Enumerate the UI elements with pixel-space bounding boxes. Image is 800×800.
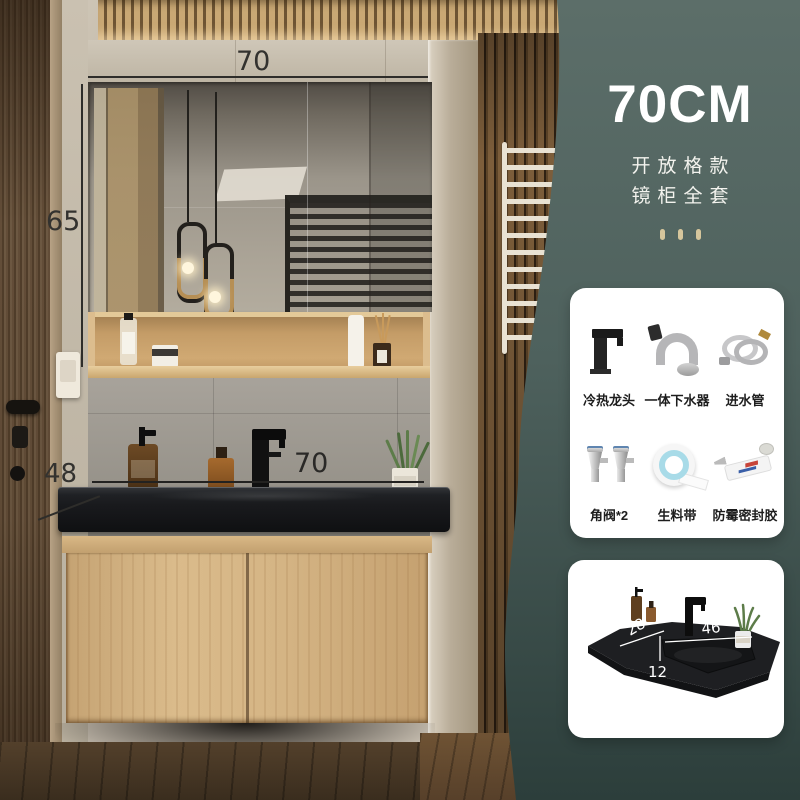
radiator-bars (505, 148, 559, 348)
dim-cabinet-width-line (88, 76, 428, 78)
subtitle-set: 镜柜全套 (560, 181, 800, 208)
bathroom-photo: 70 65 48 70 (0, 0, 570, 800)
accessory-angle-valves: 角阀*2 (575, 415, 643, 530)
cosmetic-tube (348, 315, 364, 367)
accessory-label: 进水管 (725, 390, 764, 409)
pendant-cord (187, 90, 189, 222)
wall-switch (56, 352, 80, 398)
faucet-spout (252, 429, 286, 440)
decor-dot (660, 229, 665, 240)
dim-cabinet-width-label: 70 (236, 46, 270, 77)
small-bottle (646, 607, 656, 622)
dim-height-label: 12 (648, 663, 667, 681)
accessory-drain: 一体下水器 (643, 300, 711, 415)
inlet-hose-icon (711, 321, 779, 383)
drain-pipe-icon (643, 321, 711, 383)
wood-floor-right (420, 733, 570, 800)
mirror-shade (371, 82, 432, 312)
cabinet-door-gap (246, 553, 249, 723)
dim-width-label: 46 (701, 618, 722, 638)
spray-bottle (120, 318, 137, 365)
dim-counter-depth-label: 48 (44, 459, 77, 489)
cabinet-top-rail (62, 536, 432, 553)
dim-mirror-height-line (81, 84, 83, 367)
door-lock (12, 426, 28, 448)
pendant-cord (215, 92, 217, 243)
accessory-label: 防霉密封胶 (712, 505, 777, 524)
tile-joint (88, 413, 430, 414)
subtitle-style: 开放格款 (560, 151, 800, 178)
soap-dispenser (128, 444, 158, 490)
bottle-nozzle (635, 589, 643, 592)
decor-dot (696, 229, 701, 240)
cosmetic-jar (152, 345, 178, 367)
accessory-label: 冷热龙头 (583, 390, 635, 409)
basin-highlight (148, 490, 378, 502)
mirror-seam (307, 82, 308, 312)
accessory-label: 角阀*2 (590, 505, 628, 524)
decor-dot (678, 229, 683, 240)
faucet-outlet (279, 440, 285, 448)
faucet-icon (575, 321, 643, 383)
accessory-inlet-hose: 进水管 (711, 300, 779, 415)
stone-pillar (428, 40, 478, 748)
size-headline: 70CM (560, 74, 800, 135)
accessory-faucet: 冷热龙头 (575, 300, 643, 415)
sink-diagram: 28 46 12 (568, 560, 784, 738)
accessory-label: 生料带 (657, 505, 696, 524)
mirror-seam (369, 82, 371, 312)
faucet-lever (268, 452, 281, 457)
reed-diffuser-bottle (373, 343, 391, 367)
plant-leaf (406, 430, 409, 469)
shelf-frame (88, 312, 430, 317)
open-shelf (88, 312, 430, 378)
dim-mirror-height-label: 65 (46, 206, 80, 237)
sink-dimensions-card: 28 46 12 (568, 560, 784, 738)
accessory-sealant: 防霉密封胶 (711, 415, 779, 530)
angle-valve-icon (575, 436, 643, 498)
door-handle (6, 400, 40, 414)
product-image: 70 65 48 70 70CM 开放格款 镜柜全套 (0, 0, 800, 800)
mirror-reflection-doorway (94, 88, 164, 312)
accessories-card: 冷热龙头 一体下水器 进水管 角阀*2 生料带 (570, 288, 784, 538)
dim-counter-width-label: 70 (294, 448, 328, 479)
cabinet-doors (66, 553, 428, 723)
soap-nozzle (139, 430, 156, 436)
thread-seal-tape-icon (643, 436, 711, 498)
sink-faucet-outlet (701, 605, 705, 611)
small-bottle-cap (649, 601, 654, 608)
shelf-board (88, 366, 430, 378)
sealant-tube-icon (711, 436, 779, 498)
basin-highlight (674, 647, 742, 663)
sink-faucet-spout (685, 597, 706, 605)
wood-slat-accent-wall (478, 33, 570, 743)
pendant-bulb (209, 291, 221, 303)
decor-dots (560, 229, 800, 240)
door-frame (50, 0, 62, 800)
mirror-cabinet (88, 82, 432, 312)
accessory-seal-tape: 生料带 (643, 415, 711, 530)
sink-faucet (685, 604, 693, 636)
black-ceramic-counter (58, 487, 450, 532)
towel-radiator (502, 142, 562, 354)
accessory-label: 一体下水器 (644, 390, 709, 409)
dim-counter-width-line (92, 481, 424, 483)
pendant-bulb (182, 262, 194, 274)
door-knob (10, 466, 25, 481)
